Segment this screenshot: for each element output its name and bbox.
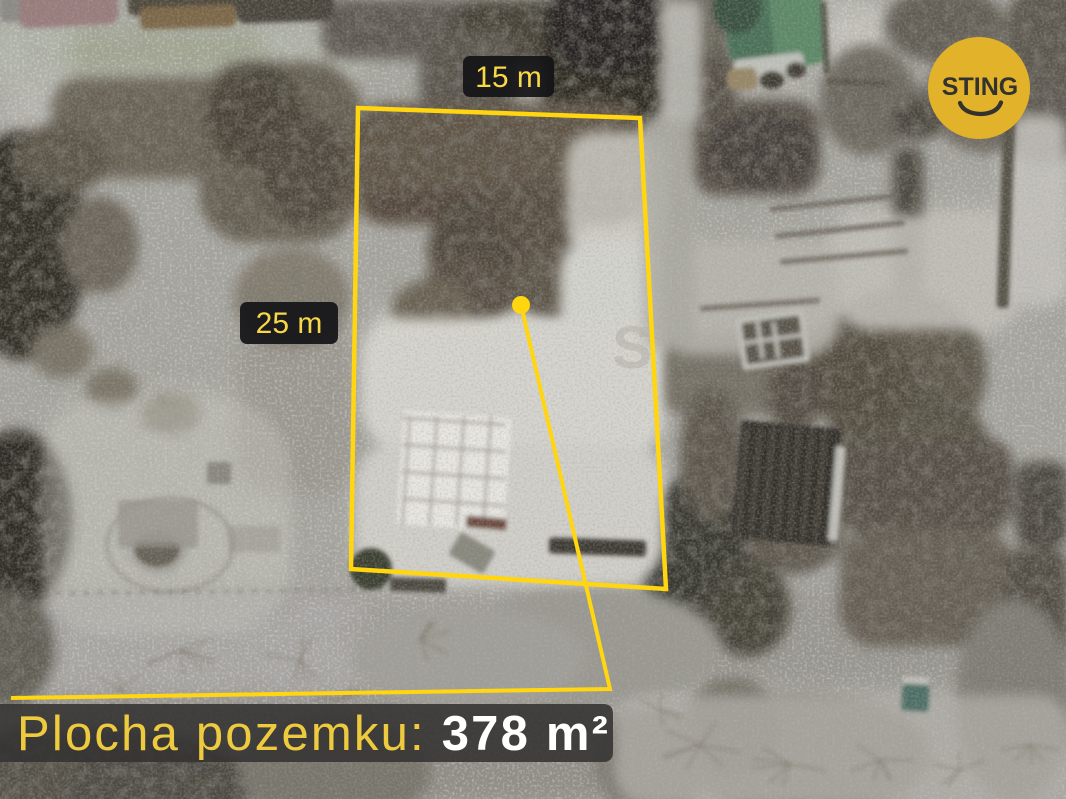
svg-text:Plocha pozemku: 378 m²: Plocha pozemku: 378 m² — [17, 707, 610, 761]
svg-text:STING: STING — [942, 73, 1018, 101]
svg-text:25 m: 25 m — [256, 307, 323, 340]
svg-text:15 m: 15 m — [475, 61, 542, 94]
